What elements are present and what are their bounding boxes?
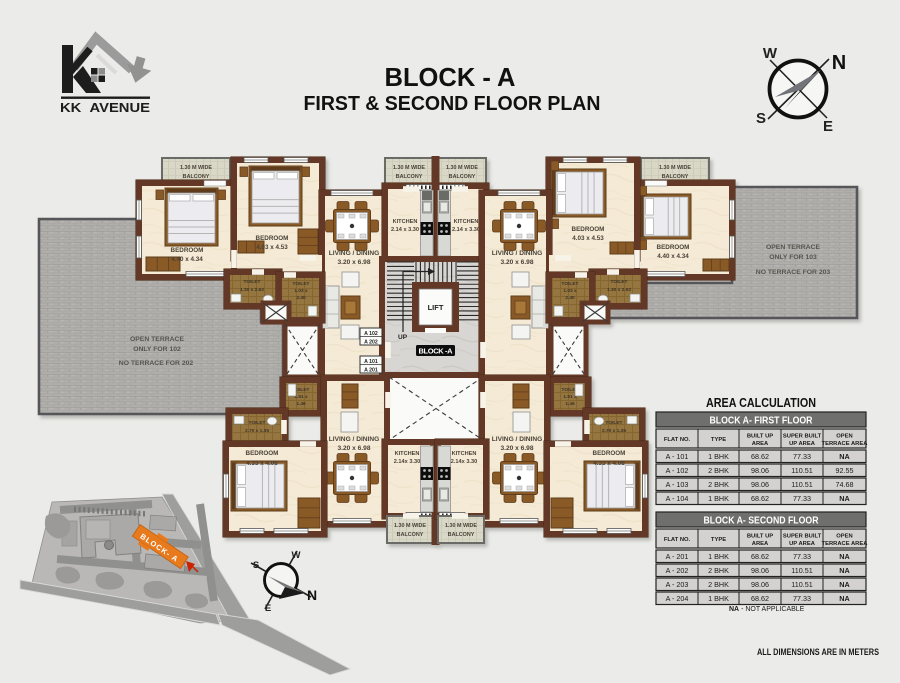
svg-text:77.33: 77.33 bbox=[793, 552, 811, 561]
svg-text:BUILT UP: BUILT UP bbox=[747, 534, 773, 540]
svg-text:LIVING / DINING: LIVING / DINING bbox=[329, 250, 380, 257]
svg-text:110.51: 110.51 bbox=[791, 466, 812, 475]
svg-text:TOILET: TOILET bbox=[249, 420, 266, 426]
svg-text:110.51: 110.51 bbox=[791, 580, 812, 589]
svg-text:LIVING / DINING: LIVING / DINING bbox=[329, 436, 380, 443]
svg-text:1 BHK: 1 BHK bbox=[708, 594, 729, 603]
svg-text:TYPE: TYPE bbox=[711, 437, 726, 443]
svg-text:1.46: 1.46 bbox=[296, 401, 306, 407]
svg-text:TOILET: TOILET bbox=[562, 281, 579, 287]
svg-text:BEDROOM: BEDROOM bbox=[657, 244, 690, 251]
svg-text:4.03 x 4.53: 4.03 x 4.53 bbox=[256, 244, 288, 251]
svg-text:TYPE: TYPE bbox=[711, 537, 726, 543]
svg-text:BLOCK - A: BLOCK - A bbox=[385, 62, 516, 92]
svg-text:2.40: 2.40 bbox=[296, 295, 306, 301]
svg-text:2 BHK: 2 BHK bbox=[708, 566, 729, 575]
svg-text:1 BHK: 1 BHK bbox=[708, 452, 729, 461]
svg-text:2.40: 2.40 bbox=[565, 295, 575, 301]
svg-text:A - 104: A - 104 bbox=[666, 494, 689, 503]
svg-text:BEDROOM: BEDROOM bbox=[246, 450, 279, 457]
svg-text:TOILET: TOILET bbox=[293, 281, 310, 287]
svg-text:4.40 x 4.34: 4.40 x 4.34 bbox=[657, 253, 689, 260]
svg-text:W: W bbox=[292, 550, 301, 561]
svg-text:1.51 x: 1.51 x bbox=[294, 394, 308, 400]
svg-text:NO TERRACE FOR 203: NO TERRACE FOR 203 bbox=[756, 269, 831, 276]
svg-text:NA: NA bbox=[839, 552, 849, 561]
svg-text:1.30 x 2.62: 1.30 x 2.62 bbox=[240, 287, 264, 293]
svg-text:AREA: AREA bbox=[752, 441, 769, 447]
svg-text:98.06: 98.06 bbox=[751, 566, 769, 575]
svg-text:BEDROOM: BEDROOM bbox=[256, 235, 289, 242]
svg-text:A 201: A 201 bbox=[364, 367, 378, 373]
svg-text:N: N bbox=[307, 587, 317, 603]
svg-text:98.06: 98.06 bbox=[751, 466, 769, 475]
svg-text:77.33: 77.33 bbox=[793, 494, 811, 503]
svg-text:68.62: 68.62 bbox=[751, 594, 769, 603]
svg-text:1.30 M WIDE: 1.30 M WIDE bbox=[180, 165, 212, 171]
svg-text:NA: NA bbox=[839, 594, 849, 603]
svg-text:2.70 x 1.35: 2.70 x 1.35 bbox=[245, 428, 269, 434]
svg-text:KITCHEN: KITCHEN bbox=[395, 451, 420, 457]
svg-text:NA: NA bbox=[839, 566, 849, 575]
svg-text:FLAT NO.: FLAT NO. bbox=[664, 437, 691, 443]
svg-text:TERRACE AREA: TERRACE AREA bbox=[822, 441, 869, 447]
svg-text:UP: UP bbox=[398, 334, 408, 341]
svg-text:OPEN: OPEN bbox=[836, 434, 852, 440]
svg-text:68.62: 68.62 bbox=[751, 452, 769, 461]
svg-text:2 BHK: 2 BHK bbox=[708, 480, 729, 489]
svg-text:FIRST & SECOND FLOOR PLAN: FIRST & SECOND FLOOR PLAN bbox=[304, 93, 601, 115]
svg-text:1.30 M WIDE: 1.30 M WIDE bbox=[659, 165, 691, 171]
svg-text:KITCHEN: KITCHEN bbox=[454, 219, 479, 225]
svg-text:NA: NA bbox=[839, 494, 849, 503]
svg-text:1 BHK: 1 BHK bbox=[708, 552, 729, 561]
svg-text:1 BHK: 1 BHK bbox=[708, 494, 729, 503]
svg-text:68.62: 68.62 bbox=[751, 552, 769, 561]
svg-text:110.51: 110.51 bbox=[791, 480, 812, 489]
svg-text:98.06: 98.06 bbox=[751, 580, 769, 589]
svg-text:BEDROOM: BEDROOM bbox=[593, 450, 626, 457]
svg-text:NA: NA bbox=[839, 580, 849, 589]
svg-text:1.03 x: 1.03 x bbox=[294, 288, 308, 294]
svg-text:BLOCK A- FIRST FLOOR: BLOCK A- FIRST FLOOR bbox=[710, 415, 813, 427]
svg-text:1.46: 1.46 bbox=[565, 401, 575, 407]
svg-text:ONLY FOR 103: ONLY FOR 103 bbox=[769, 254, 817, 261]
svg-text:KITCHEN: KITCHEN bbox=[393, 219, 418, 225]
svg-text:A - 102: A - 102 bbox=[666, 466, 689, 475]
svg-text:AREA: AREA bbox=[752, 541, 769, 547]
svg-text:BALCONY: BALCONY bbox=[448, 532, 475, 538]
svg-text:SUPER BUILT: SUPER BUILT bbox=[783, 534, 822, 540]
svg-text:2 BHK: 2 BHK bbox=[708, 466, 729, 475]
svg-text:N: N bbox=[832, 52, 846, 74]
svg-text:BALCONY: BALCONY bbox=[449, 174, 476, 180]
svg-text:4.33 x 4.08: 4.33 x 4.08 bbox=[593, 460, 625, 467]
svg-text:74.68: 74.68 bbox=[836, 480, 854, 489]
svg-text:LIVING / DINING: LIVING / DINING bbox=[492, 436, 543, 443]
svg-text:2.14 x 3.30: 2.14 x 3.30 bbox=[391, 227, 419, 233]
svg-text:92.55: 92.55 bbox=[836, 466, 854, 475]
svg-text:S: S bbox=[756, 110, 766, 127]
svg-text:1.30 M WIDE: 1.30 M WIDE bbox=[394, 523, 426, 529]
svg-text:A - 204: A - 204 bbox=[666, 594, 689, 603]
svg-text:A - 201: A - 201 bbox=[666, 552, 689, 561]
svg-text:OPEN: OPEN bbox=[836, 534, 852, 540]
svg-text:LIFT: LIFT bbox=[428, 303, 444, 312]
svg-text:2.14x 3.30: 2.14x 3.30 bbox=[451, 459, 477, 465]
svg-text:UP AREA: UP AREA bbox=[789, 441, 816, 447]
svg-text:SUPER BUILT: SUPER BUILT bbox=[783, 434, 822, 440]
svg-text:S: S bbox=[253, 560, 259, 571]
svg-text:ONLY FOR 102: ONLY FOR 102 bbox=[133, 346, 181, 353]
svg-text:A 102: A 102 bbox=[364, 331, 378, 337]
svg-text:TOILET: TOILET bbox=[611, 279, 628, 285]
svg-text:BALCONY: BALCONY bbox=[662, 174, 689, 180]
svg-text:77.33: 77.33 bbox=[793, 452, 811, 461]
svg-text:FLAT NO.: FLAT NO. bbox=[664, 537, 691, 543]
svg-text:BALCONY: BALCONY bbox=[183, 174, 210, 180]
svg-text:NA - NOT APPLICABLE: NA - NOT APPLICABLE bbox=[729, 606, 805, 613]
svg-text:KITCHEN: KITCHEN bbox=[452, 451, 477, 457]
svg-text:LIVING / DINING: LIVING / DINING bbox=[492, 250, 543, 257]
svg-text:98.06: 98.06 bbox=[751, 480, 769, 489]
svg-text:NO TERRACE FOR 202: NO TERRACE FOR 202 bbox=[119, 360, 194, 367]
svg-text:A 101: A 101 bbox=[364, 359, 378, 365]
svg-text:BLOCK -A: BLOCK -A bbox=[419, 347, 454, 356]
svg-text:OPEN TERRACE: OPEN TERRACE bbox=[130, 336, 184, 343]
svg-text:3.20 x 6.98: 3.20 x 6.98 bbox=[338, 445, 371, 452]
svg-text:2.14 x 3.30: 2.14 x 3.30 bbox=[452, 227, 480, 233]
svg-text:ALL DIMENSIONS ARE IN METERS: ALL DIMENSIONS ARE IN METERS bbox=[757, 647, 879, 657]
svg-text:BLOCK A- SECOND FLOOR: BLOCK A- SECOND FLOOR bbox=[704, 515, 819, 527]
svg-text:2.70 x 1.35: 2.70 x 1.35 bbox=[602, 428, 626, 434]
svg-text:3.20 x 6.98: 3.20 x 6.98 bbox=[501, 445, 534, 452]
svg-text:A 202: A 202 bbox=[364, 339, 378, 345]
svg-text:A - 101: A - 101 bbox=[666, 452, 689, 461]
svg-text:E: E bbox=[823, 118, 833, 135]
svg-text:UP AREA: UP AREA bbox=[789, 541, 816, 547]
svg-text:AREA CALCULATION: AREA CALCULATION bbox=[706, 395, 816, 410]
svg-text:BALCONY: BALCONY bbox=[396, 174, 423, 180]
svg-text:BEDROOM: BEDROOM bbox=[171, 247, 204, 254]
svg-text:2.14x 3.30: 2.14x 3.30 bbox=[394, 459, 420, 465]
svg-text:TERRACE AREA: TERRACE AREA bbox=[822, 541, 869, 547]
svg-text:3.20 x 6.98: 3.20 x 6.98 bbox=[501, 259, 534, 266]
svg-text:OPEN TERRACE: OPEN TERRACE bbox=[766, 244, 820, 251]
svg-text:E: E bbox=[265, 603, 271, 614]
svg-text:4.03 x 4.53: 4.03 x 4.53 bbox=[572, 235, 604, 242]
svg-text:BEDROOM: BEDROOM bbox=[572, 226, 605, 233]
svg-text:1.30 M WIDE: 1.30 M WIDE bbox=[446, 165, 478, 171]
svg-text:3.20 x 6.98: 3.20 x 6.98 bbox=[338, 259, 371, 266]
svg-text:KK AVENUE: KK AVENUE bbox=[60, 100, 150, 115]
svg-text:TOILET: TOILET bbox=[244, 279, 261, 285]
svg-text:A - 203: A - 203 bbox=[666, 580, 689, 589]
svg-text:W: W bbox=[763, 45, 778, 62]
svg-text:TOILET: TOILET bbox=[606, 420, 623, 426]
svg-text:68.62: 68.62 bbox=[751, 494, 769, 503]
svg-text:110.51: 110.51 bbox=[791, 566, 812, 575]
svg-text:BALCONY: BALCONY bbox=[397, 532, 424, 538]
svg-text:77.33: 77.33 bbox=[793, 594, 811, 603]
svg-text:A - 202: A - 202 bbox=[666, 566, 689, 575]
svg-text:1.30 x 2.62: 1.30 x 2.62 bbox=[607, 287, 631, 293]
svg-text:NA: NA bbox=[839, 452, 849, 461]
svg-text:4.33 x 4.08: 4.33 x 4.08 bbox=[246, 460, 278, 467]
svg-text:1.30 M WIDE: 1.30 M WIDE bbox=[445, 523, 477, 529]
svg-text:BUILT UP: BUILT UP bbox=[747, 434, 773, 440]
svg-text:A - 103: A - 103 bbox=[666, 480, 689, 489]
svg-text:2 BHK: 2 BHK bbox=[708, 580, 729, 589]
svg-text:1.03 x: 1.03 x bbox=[563, 288, 577, 294]
svg-text:1.30 M WIDE: 1.30 M WIDE bbox=[393, 165, 425, 171]
svg-text:4.40 x 4.34: 4.40 x 4.34 bbox=[171, 256, 203, 263]
